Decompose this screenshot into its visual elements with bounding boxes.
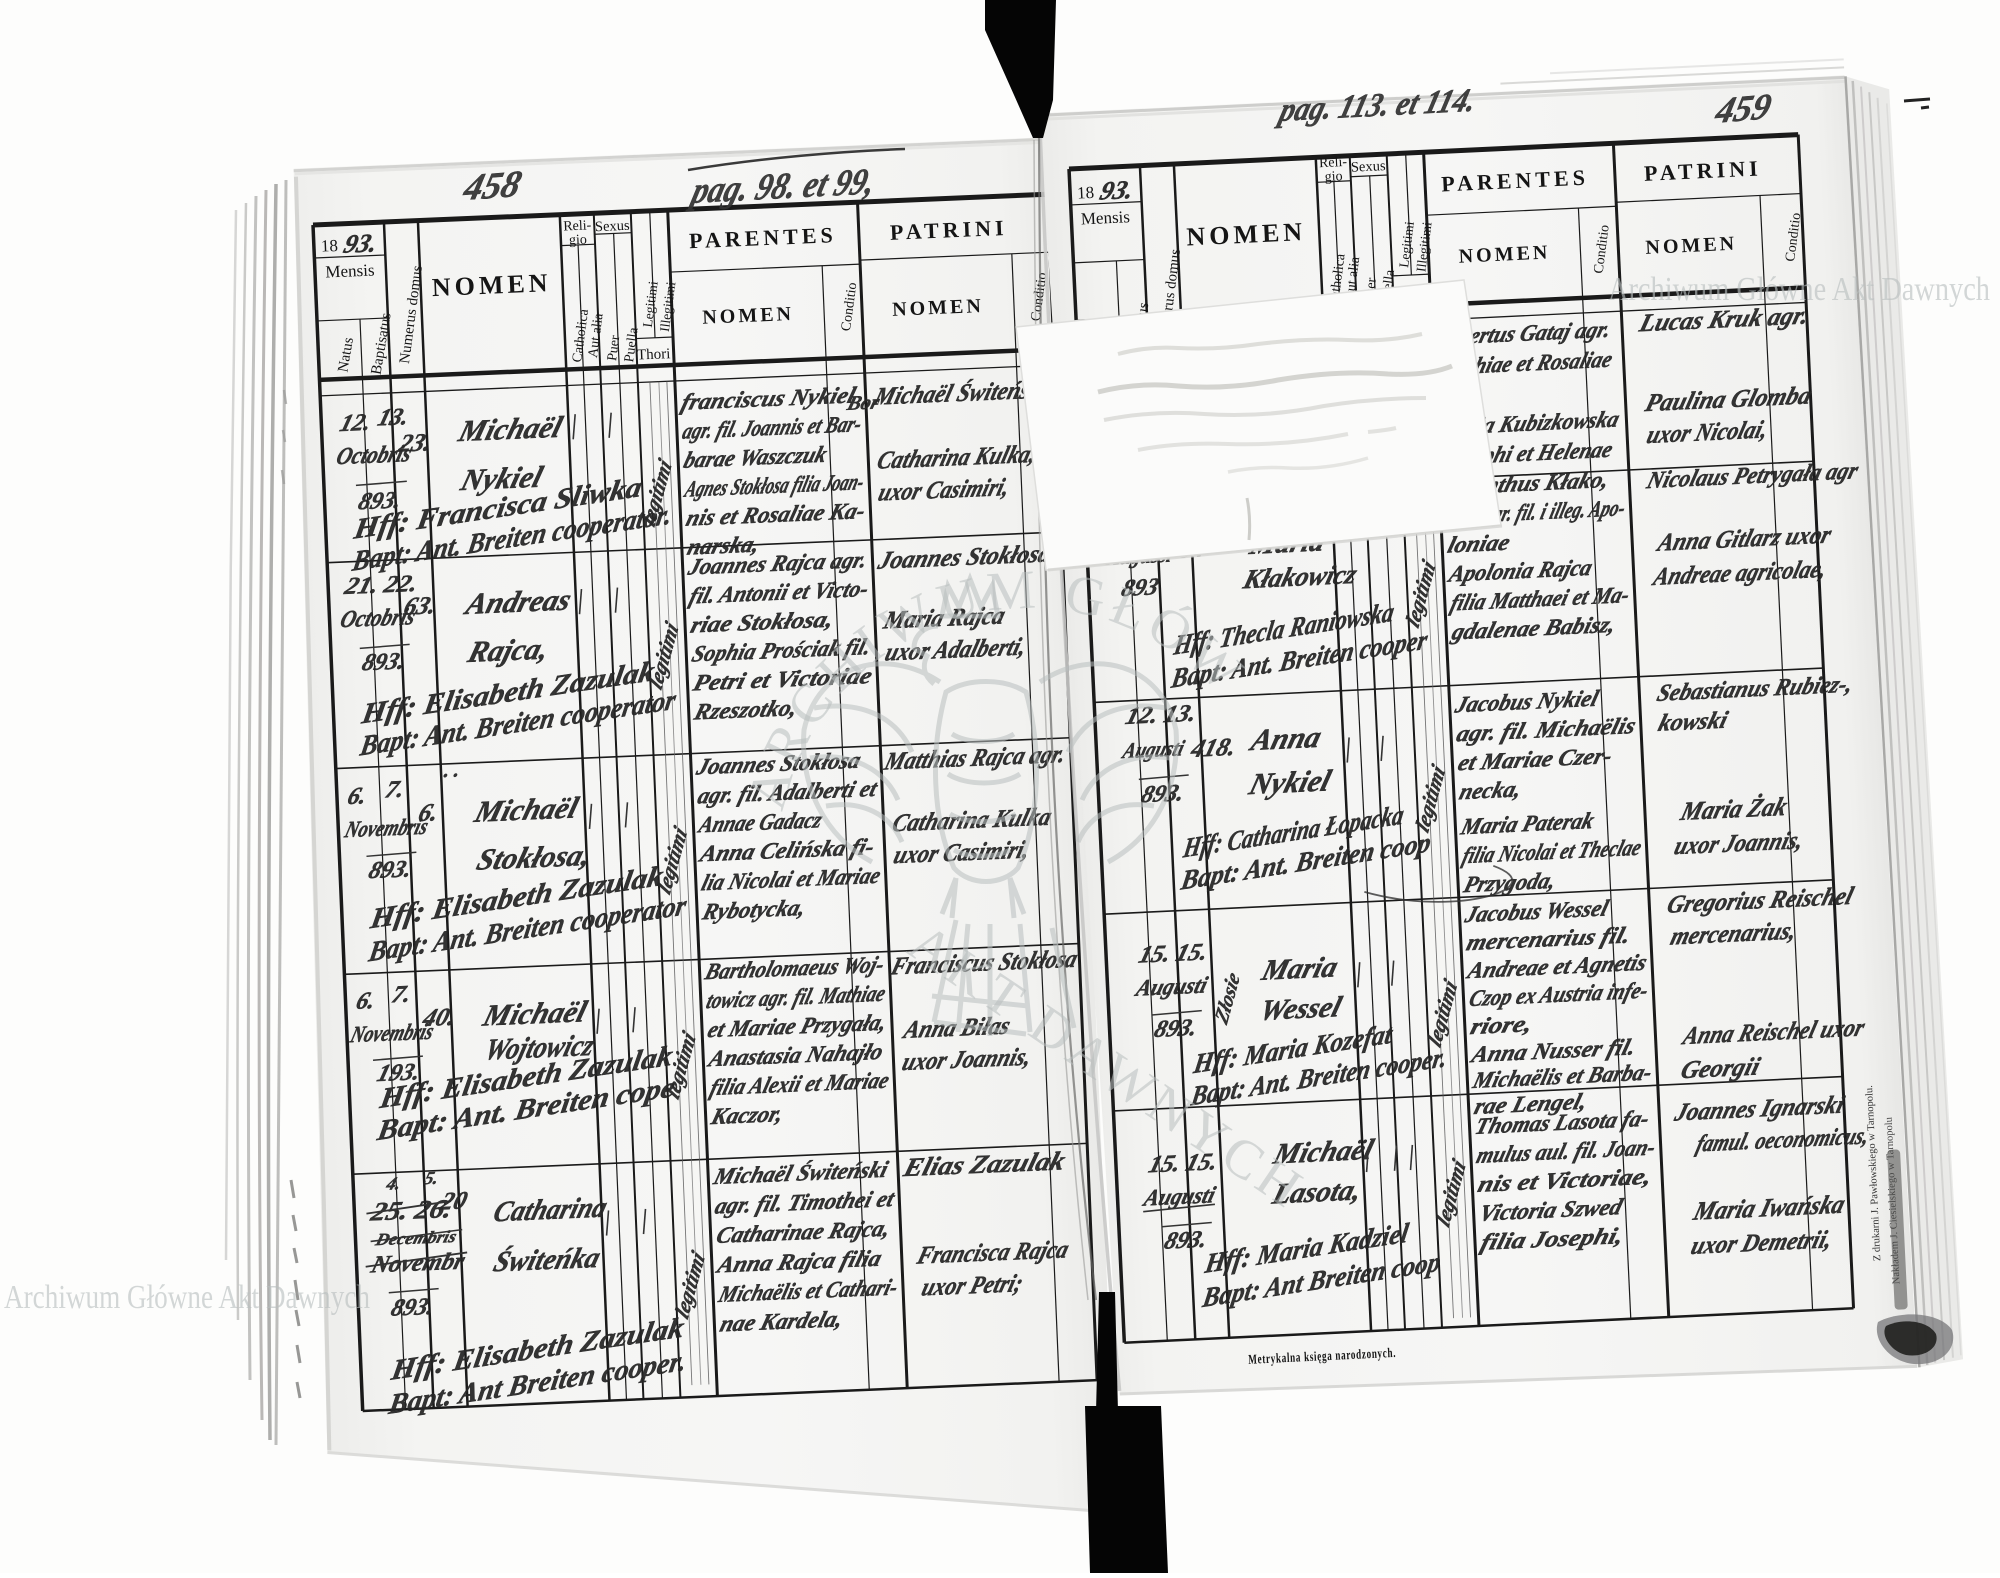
svg-text:loniae: loniae <box>1445 530 1513 559</box>
svg-text:gio: gio <box>1324 169 1343 185</box>
svg-text:Archiwum Główne Akt Dawnych: Archiwum Główne Akt Dawnych <box>1608 271 1990 308</box>
svg-text:Thori: Thori <box>637 346 671 363</box>
svg-text:NOMEN: NOMEN <box>702 303 795 329</box>
svg-text:uxor Joannis,: uxor Joannis, <box>899 1042 1035 1076</box>
svg-text:Michaël: Michaël <box>454 410 566 448</box>
svg-text:Andreas: Andreas <box>461 583 576 621</box>
svg-text:Decembris: Decembris <box>373 1226 460 1249</box>
svg-text:Archiwum Główne Akt Dawnych: Archiwum Główne Akt Dawnych <box>4 1279 370 1316</box>
svg-text:Catharina: Catharina <box>490 1191 611 1228</box>
svg-text:NOMEN: NOMEN <box>1458 241 1551 267</box>
svg-text:Rybotycka,: Rybotycka, <box>699 895 809 925</box>
svg-text:NOMEN: NOMEN <box>431 268 552 302</box>
svg-text:Novembr: Novembr <box>367 1248 468 1279</box>
svg-text:Sexus: Sexus <box>595 218 631 235</box>
svg-text:NOMEN: NOMEN <box>1186 217 1307 252</box>
svg-text:kowski: kowski <box>1656 707 1731 737</box>
svg-text:893.: 893. <box>366 856 415 884</box>
svg-text:nae Kardela,: nae Kardela, <box>717 1307 846 1338</box>
svg-text:Mensis: Mensis <box>325 260 375 281</box>
svg-text:Przygoda,: Przygoda, <box>1460 868 1559 898</box>
svg-text:gio: gio <box>569 233 588 249</box>
svg-text:893.: 893. <box>359 648 408 676</box>
svg-text:necka,: necka, <box>1457 777 1525 806</box>
svg-text:15. 15.: 15. 15. <box>1136 939 1211 969</box>
svg-text:459: 459 <box>1711 85 1775 131</box>
svg-text:893.: 893. <box>388 1293 437 1321</box>
svg-text:NOMEN: NOMEN <box>1645 233 1738 259</box>
svg-text:893.: 893. <box>1161 1226 1210 1255</box>
svg-text:Michaël: Michaël <box>470 791 582 829</box>
svg-text:Wessel: Wessel <box>1256 991 1346 1027</box>
svg-text:NOMEN: NOMEN <box>892 295 985 321</box>
svg-text:893.: 893. <box>1151 1014 1200 1043</box>
svg-text:Michaël: Michaël <box>479 995 591 1033</box>
svg-text:Augusti: Augusti <box>1132 973 1211 1002</box>
svg-text:Nykiel: Nykiel <box>1245 764 1335 801</box>
svg-text:418.: 418. <box>1187 732 1240 763</box>
svg-text:Kłakowicz: Kłakowicz <box>1239 558 1360 594</box>
svg-text:Maria Żak: Maria Żak <box>1677 791 1791 826</box>
svg-text:uxor Nicolai,: uxor Nicolai, <box>1644 415 1772 449</box>
svg-text:PATRINI: PATRINI <box>889 215 1008 245</box>
svg-text:Georgii: Georgii <box>1678 1052 1764 1084</box>
svg-text:18: 18 <box>1077 183 1095 203</box>
svg-text:uxor Casimiri,: uxor Casimiri, <box>875 472 1013 506</box>
svg-text:Świteńka: Świteńka <box>490 1241 604 1278</box>
svg-text:Maria: Maria <box>1258 951 1342 987</box>
svg-text:uxor Petri;: uxor Petri; <box>919 1269 1027 1302</box>
svg-text:Sexus: Sexus <box>1351 158 1387 176</box>
svg-text:Kaczor,: Kaczor, <box>707 1101 786 1130</box>
svg-text:Mensis: Mensis <box>1080 207 1130 228</box>
svg-text:riore,: riore, <box>1468 1011 1536 1040</box>
svg-text:Anna: Anna <box>1246 720 1325 757</box>
svg-text:458: 458 <box>459 163 526 209</box>
svg-text:Rajca,: Rajca, <box>464 632 553 669</box>
svg-text:18: 18 <box>320 236 338 256</box>
svg-text:Stokłosa,: Stokłosa, <box>473 838 595 876</box>
